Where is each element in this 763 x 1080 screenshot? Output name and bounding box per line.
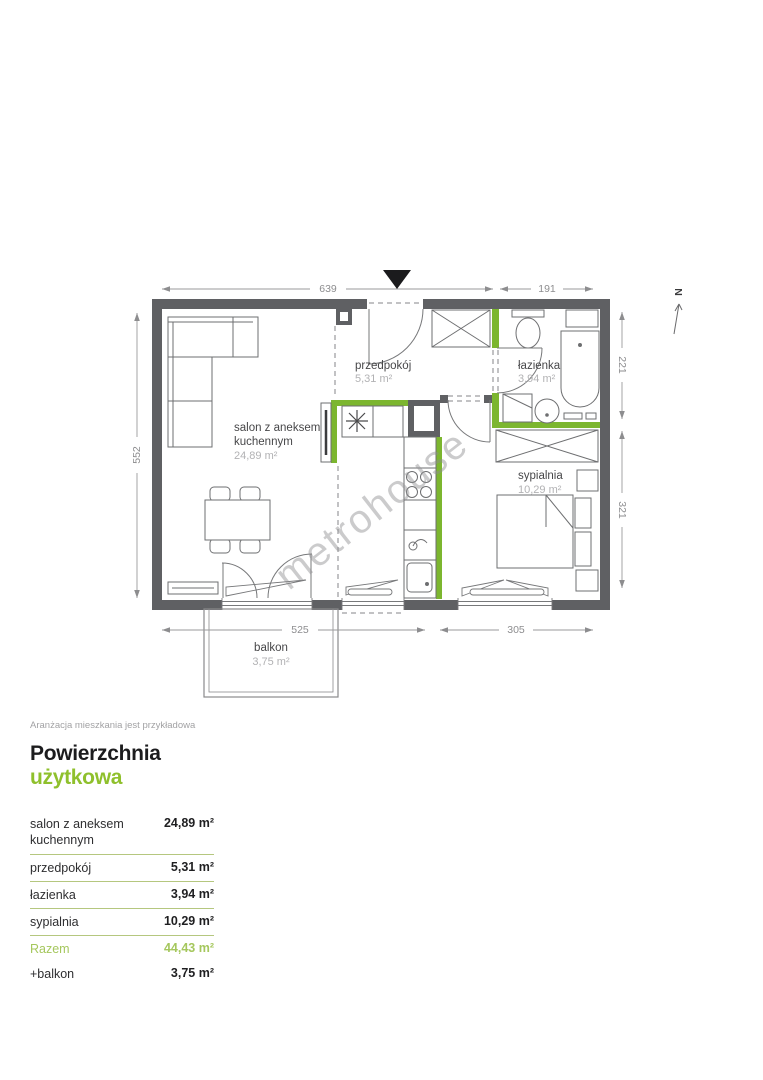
row-value: 3,94 m² xyxy=(171,887,214,901)
north-arrow-icon xyxy=(674,304,682,334)
dim-bottom-left: 525 xyxy=(291,624,309,636)
row-value: 10,29 m² xyxy=(164,914,214,928)
dim-top-right: 191 xyxy=(538,283,556,295)
room-area-salon: 24,89 m² xyxy=(234,450,278,462)
disclaimer-text: Aranżacja mieszkania jest przykładowa xyxy=(30,720,196,731)
tv-panel xyxy=(321,403,331,462)
toilet xyxy=(512,310,544,348)
table-row: przedpokój 5,31 m² xyxy=(30,856,214,880)
bath-sink xyxy=(535,399,559,423)
fridge xyxy=(342,406,403,437)
dim-bottom-right: 305 xyxy=(507,624,525,636)
north-indicator: N xyxy=(672,288,684,334)
room-area-hall: 5,31 m² xyxy=(355,373,393,385)
row-value: 44,43 m² xyxy=(164,941,214,955)
row-label: sypialnia xyxy=(30,914,79,930)
kitchen-sink xyxy=(407,563,432,592)
entrance-door xyxy=(368,309,423,364)
row-separator xyxy=(30,881,214,882)
floor-plan: 639 191 552 221 321 525 305 salon z anek… xyxy=(0,0,763,735)
room-label-salon-line1: salon z aneksem xyxy=(234,422,320,434)
chair xyxy=(240,539,260,553)
row-label: łazienka xyxy=(30,887,76,903)
room-label-balcony: balkon xyxy=(254,642,288,654)
dim-left: 552 xyxy=(131,446,143,464)
room-area-bedroom: 10,29 m² xyxy=(518,484,562,496)
row-label: +balkon xyxy=(30,966,74,982)
chair xyxy=(210,539,230,553)
dim-top-main: 639 xyxy=(319,283,337,295)
windows xyxy=(222,580,552,610)
bedroom-wardrobe xyxy=(496,430,598,462)
fridge-snowflake-icon xyxy=(346,410,368,432)
balcony-door-left xyxy=(222,563,257,598)
chair xyxy=(240,487,260,501)
hall-wardrobe xyxy=(432,310,490,347)
room-area-bath: 3,94 m² xyxy=(518,373,556,385)
table-row-balcony: +balkon 3,75 m² xyxy=(30,962,214,986)
washing-machine xyxy=(503,394,532,422)
dim-right-top: 221 xyxy=(616,356,628,374)
bathtub xyxy=(561,331,599,419)
room-area-balcony: 3,75 m² xyxy=(252,656,290,668)
row-label: salon z aneksem kuchennym xyxy=(30,816,146,849)
summary-title-green: użytkowa xyxy=(30,766,122,789)
row-value: 3,75 m² xyxy=(171,966,214,980)
summary-title-black: Powierzchnia xyxy=(30,742,161,765)
bath-cabinet xyxy=(566,310,598,327)
nightstand xyxy=(576,570,598,591)
row-separator xyxy=(30,935,214,936)
entrance-arrow-icon xyxy=(383,270,411,289)
table-row: salon z aneksem kuchennym 24,89 m² xyxy=(30,812,214,853)
radiator xyxy=(168,582,218,594)
room-label-bedroom: sypialnia xyxy=(518,470,563,482)
summary-table: Powierzchnia użytkowa salon z aneksem ku… xyxy=(30,742,214,986)
row-value: 24,89 m² xyxy=(164,816,214,830)
row-label: Razem xyxy=(30,941,70,957)
dining-table xyxy=(205,487,270,553)
room-label-salon-line2: kuchennym xyxy=(234,436,293,448)
room-label-bath: łazienka xyxy=(518,360,561,372)
room-label-hall: przedpokój xyxy=(355,360,411,372)
table-row-total: Razem 44,43 m² xyxy=(30,937,214,961)
chair xyxy=(210,487,230,501)
nightstand xyxy=(577,470,598,491)
row-label: przedpokój xyxy=(30,860,91,876)
row-value: 5,31 m² xyxy=(171,860,214,874)
table-row: sypialnia 10,29 m² xyxy=(30,910,214,934)
dim-right-bottom: 321 xyxy=(616,501,628,519)
table-row: łazienka 3,94 m² xyxy=(30,883,214,907)
row-separator xyxy=(30,908,214,909)
north-label: N xyxy=(672,288,684,296)
floor-plan-page: 639 191 552 221 321 525 305 salon z anek… xyxy=(0,0,763,1080)
row-separator xyxy=(30,854,214,855)
summary-title: Powierzchnia użytkowa xyxy=(30,742,214,790)
watermark: metrohouse xyxy=(267,421,476,598)
